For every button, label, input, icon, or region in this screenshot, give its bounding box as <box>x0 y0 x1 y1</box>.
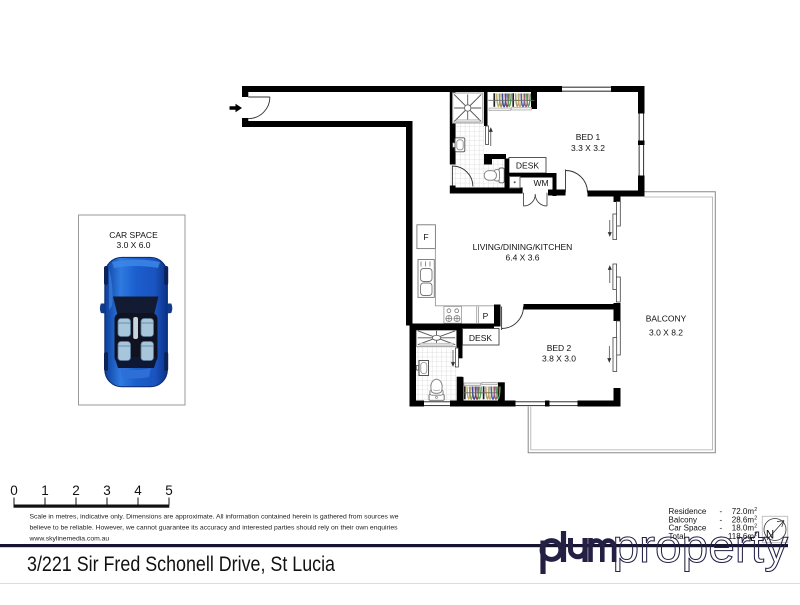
svg-text:1: 1 <box>41 483 49 498</box>
svg-text:BALCONY: BALCONY <box>646 314 687 324</box>
svg-text:F: F <box>423 232 428 242</box>
svg-text:BED 1: BED 1 <box>576 132 601 142</box>
svg-text:3.8 X 3.0: 3.8 X 3.0 <box>542 353 576 363</box>
svg-text:3.0 X 6.0: 3.0 X 6.0 <box>116 240 150 250</box>
svg-text:CAR SPACE: CAR SPACE <box>109 230 158 240</box>
svg-text:Scale in metres, indicative on: Scale in metres, indicative only. Dimens… <box>30 514 399 521</box>
svg-text:property: property <box>613 520 789 572</box>
svg-text:2: 2 <box>72 483 80 498</box>
svg-text:3: 3 <box>103 483 111 498</box>
svg-text:2: 2 <box>754 507 757 513</box>
svg-text:DESK: DESK <box>516 161 539 171</box>
svg-text:3.0 X 8.2: 3.0 X 8.2 <box>649 328 683 338</box>
svg-text:www.skylinemedia.com.au: www.skylinemedia.com.au <box>29 535 110 542</box>
svg-text:WM: WM <box>533 178 548 188</box>
svg-text:DESK: DESK <box>469 333 492 343</box>
svg-text:LIVING/DINING/KITCHEN: LIVING/DINING/KITCHEN <box>473 242 573 252</box>
svg-text:4: 4 <box>134 483 142 498</box>
svg-text:BED 2: BED 2 <box>547 343 572 353</box>
svg-text:6.4 X 3.6: 6.4 X 3.6 <box>505 253 539 263</box>
svg-text:3/221 Sir Fred Schonell Drive,: 3/221 Sir Fred Schonell Drive, St Lucia <box>27 552 335 576</box>
svg-text:3.3 X 3.2: 3.3 X 3.2 <box>571 143 605 153</box>
svg-text:P: P <box>483 311 489 321</box>
svg-text:believe to be reliable. Howeve: believe to be reliable. However, we cann… <box>30 525 399 532</box>
svg-text:5: 5 <box>165 483 173 498</box>
svg-text:0: 0 <box>10 483 18 498</box>
